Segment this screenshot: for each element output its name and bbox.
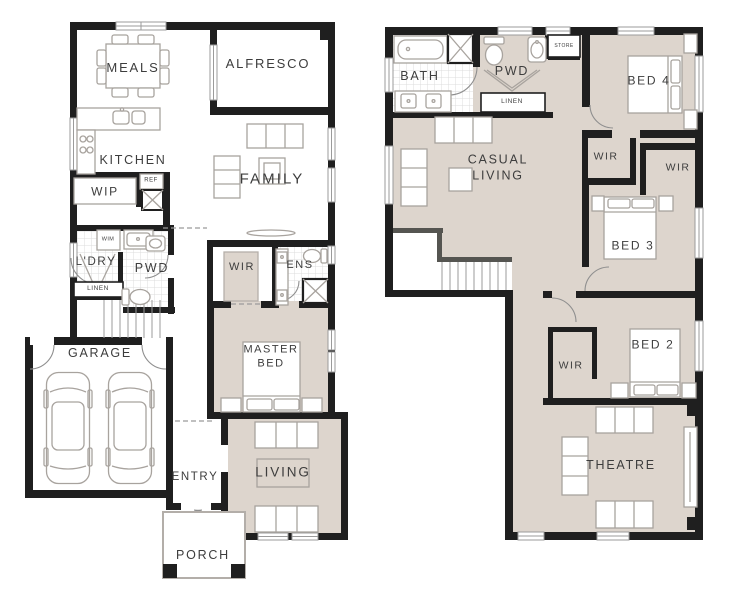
window-pwd-top	[498, 27, 532, 35]
room-label-bed2: BED 2	[631, 338, 674, 353]
room-label-bath: BATH	[400, 69, 439, 85]
window-ens-right	[328, 246, 335, 264]
room-label-wir-bed3: WIR	[666, 161, 691, 174]
room-label-ref: REF	[144, 177, 157, 185]
ground-floor-plan	[25, 22, 348, 578]
pwd-basin-icon	[146, 236, 165, 251]
floor-plan-page: MEALS ALFRESCO KITCHEN FAMILY WIP REF WI…	[0, 0, 735, 600]
shower-icon-bath	[448, 34, 473, 63]
room-label-store: STORE	[554, 43, 573, 49]
room-label-wir-ground: WIR	[229, 261, 255, 275]
room-label-wir-bed2: WIR	[559, 359, 584, 372]
kitchen-island	[77, 108, 160, 130]
room-label-family: FAMILY	[240, 171, 305, 190]
room-label-pwd-first: PWD	[495, 64, 529, 80]
room-label-alfresco: ALFRESCO	[226, 56, 311, 72]
window-bed4-top	[618, 27, 654, 35]
porch-pillar-right	[231, 564, 245, 578]
garage-door-arc	[30, 345, 54, 369]
ens-vanity	[276, 249, 288, 305]
room-label-meals: MEALS	[106, 60, 159, 76]
window-bed4-right	[695, 56, 703, 112]
shower-icon-ens	[303, 279, 328, 303]
room-label-ens: ENS	[286, 259, 313, 273]
stair-treads-floor	[442, 257, 512, 295]
room-label-theatre: THEATRE	[586, 458, 656, 474]
wir-robe	[224, 252, 258, 301]
room-label-wip: WIP	[91, 185, 119, 200]
kitchen-bench	[77, 130, 95, 174]
room-label-kitchen: KITCHEN	[99, 153, 166, 169]
room-label-master-bed: MASTER BED	[240, 343, 302, 371]
car-icon-2	[106, 373, 154, 484]
window-bed3-right	[695, 208, 703, 258]
niche-bench	[247, 230, 295, 236]
shower-closet-icon	[142, 190, 163, 210]
room-label-entry: ENTRY	[172, 470, 219, 484]
window-store-top	[546, 27, 570, 35]
basin-icon-pwd2	[528, 37, 546, 62]
porch-structure	[163, 512, 245, 578]
bathtub-icon	[394, 36, 447, 63]
window-casual-left	[385, 146, 393, 204]
room-label-porch: PORCH	[176, 548, 230, 564]
window-bath-left	[385, 58, 393, 92]
room-label-ldry: L'DRY	[76, 255, 117, 269]
hall-garage-door-arc	[142, 345, 166, 369]
room-label-linen: LINEN	[87, 285, 109, 293]
room-label-wim: WIM	[102, 237, 115, 244]
floor-plan-drawing	[0, 0, 735, 600]
window-meals-top	[116, 22, 166, 30]
window-family-right-2	[328, 168, 335, 202]
room-label-living: LIVING	[255, 465, 311, 482]
room-label-linen-first: LINEN	[501, 98, 523, 106]
window-bed2-right	[695, 321, 703, 371]
room-label-garage: GARAGE	[68, 346, 132, 362]
toilet-icon-pwd	[122, 289, 150, 305]
toilet-icon-pwd2	[484, 37, 504, 65]
window-living-bottom	[258, 533, 318, 540]
room-label-pwd: PWD	[135, 261, 169, 277]
room-label-bed3: BED 3	[611, 239, 654, 254]
front-door-opening	[181, 503, 211, 510]
room-label-bed4: BED 4	[627, 74, 670, 89]
window-alfresco-divider	[210, 45, 217, 100]
room-label-wir-bed4: WIR	[594, 150, 619, 163]
window-kitchen-left	[70, 118, 77, 170]
porch-pillar-left	[163, 564, 177, 578]
stair-landing	[393, 233, 442, 295]
garage-door-opening	[30, 337, 54, 345]
bath-vanity	[395, 91, 451, 112]
room-label-casual-living: CASUAL LIVING	[448, 152, 548, 183]
window-family-right-1	[328, 128, 335, 160]
car-icon-1	[44, 373, 92, 484]
tv-icon	[684, 427, 697, 507]
hall-door-opening	[142, 337, 166, 345]
